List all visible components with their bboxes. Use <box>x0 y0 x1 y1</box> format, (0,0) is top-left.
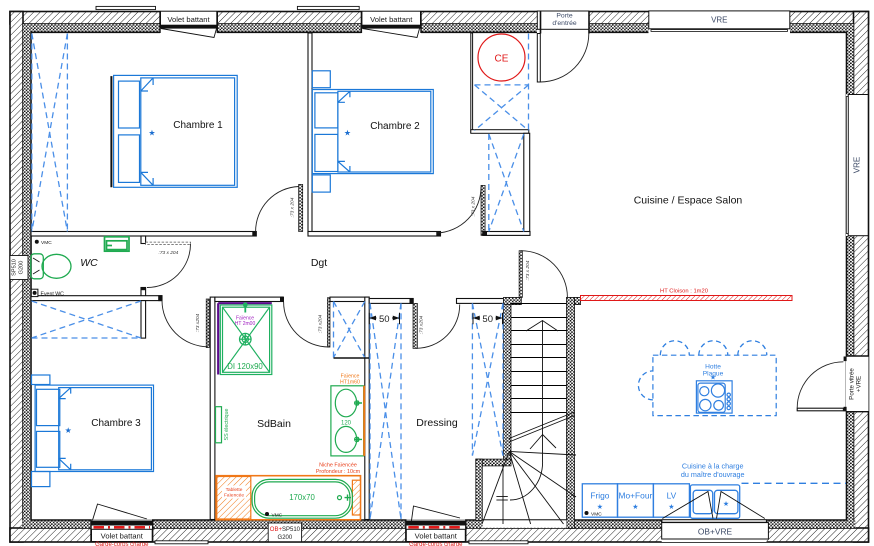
svg-text:Profondeur : 10cm: Profondeur : 10cm <box>316 469 361 475</box>
svg-text:du maître d'ouvrage: du maître d'ouvrage <box>681 470 745 479</box>
svg-text:HT Cloison : 1m20: HT Cloison : 1m20 <box>660 289 708 295</box>
svg-text::73 x204: :73 x204 <box>195 313 201 332</box>
svg-text:OB+SP510: OB+SP510 <box>270 527 301 533</box>
svg-text:★: ★ <box>723 500 729 508</box>
svg-text::73 x 204: :73 x 204 <box>525 260 531 280</box>
svg-text:VRE: VRE <box>853 157 862 173</box>
svg-text:Volet battant: Volet battant <box>415 532 458 541</box>
svg-text:Chambre 1: Chambre 1 <box>173 120 223 131</box>
svg-text:50: 50 <box>379 314 390 325</box>
svg-text::73 x 204: :73 x 204 <box>290 197 296 217</box>
svg-text:Dgt: Dgt <box>311 257 327 269</box>
svg-text:120: 120 <box>341 421 352 427</box>
svg-text:★: ★ <box>65 426 72 435</box>
svg-text:Cuisine / Espace Salon: Cuisine / Espace Salon <box>634 195 743 207</box>
svg-text:★: ★ <box>344 129 351 138</box>
svg-text:+VRE: +VRE <box>856 376 863 392</box>
svg-text::73 x204: :73 x204 <box>419 315 425 334</box>
svg-text::73 x204: :73 x204 <box>318 314 324 333</box>
svg-text:OB+VRE: OB+VRE <box>698 527 733 537</box>
svg-text:HT1m60: HT1m60 <box>340 380 360 386</box>
svg-text:G200: G200 <box>278 535 293 541</box>
svg-text:Chambre 3: Chambre 3 <box>91 418 141 429</box>
svg-text:Event WC: Event WC <box>41 291 65 297</box>
svg-text:VMC: VMC <box>272 512 283 518</box>
svg-text:★: ★ <box>668 503 674 511</box>
svg-text:Volet battant: Volet battant <box>101 532 144 541</box>
svg-text:VMC: VMC <box>41 240 52 246</box>
svg-text:SS électrique: SS électrique <box>224 408 230 440</box>
svg-text:Porte vitrée: Porte vitrée <box>849 368 856 400</box>
svg-text:★: ★ <box>597 503 603 511</box>
svg-text::73 x 204: :73 x 204 <box>159 250 179 256</box>
svg-text:Volet battant: Volet battant <box>370 15 413 24</box>
svg-text:170x70: 170x70 <box>289 493 315 502</box>
svg-text:SP510: SP510 <box>12 259 18 276</box>
svg-text:Frigo: Frigo <box>590 491 609 501</box>
svg-text:WC: WC <box>80 257 98 269</box>
svg-text:VRE: VRE <box>711 16 727 25</box>
svg-text:Niche Faïencée: Niche Faïencée <box>319 463 357 469</box>
svg-text:Garde-corps charge: Garde-corps charge <box>409 542 463 546</box>
svg-text:HT 2m00: HT 2m00 <box>235 321 256 327</box>
svg-text:Tablette: Tablette <box>226 487 243 493</box>
svg-text:LV: LV <box>667 491 677 501</box>
svg-text:★: ★ <box>148 129 155 138</box>
svg-text:Garde-corps charge: Garde-corps charge <box>95 542 149 546</box>
svg-text:50: 50 <box>482 314 493 325</box>
svg-text:DI 120x90: DI 120x90 <box>227 362 263 371</box>
svg-text:G200: G200 <box>19 261 25 275</box>
svg-text:Hotte: Hotte <box>705 364 721 371</box>
svg-text:★: ★ <box>632 503 638 511</box>
svg-text:★: ★ <box>710 374 716 382</box>
svg-text:d'entrée: d'entrée <box>552 20 577 27</box>
svg-text:VMC: VMC <box>591 511 602 517</box>
svg-text::73 x 204: :73 x 204 <box>471 196 477 216</box>
svg-text:Chambre 2: Chambre 2 <box>370 121 420 132</box>
svg-text:CE: CE <box>495 54 509 65</box>
svg-text:Mo+Four: Mo+Four <box>619 491 653 501</box>
svg-text:Faïencée: Faïencée <box>224 493 244 499</box>
svg-text:Porte: Porte <box>556 13 572 20</box>
svg-text:Dressing: Dressing <box>416 417 458 429</box>
svg-text:SdBain: SdBain <box>257 418 291 430</box>
svg-text:Volet battant: Volet battant <box>167 15 210 24</box>
